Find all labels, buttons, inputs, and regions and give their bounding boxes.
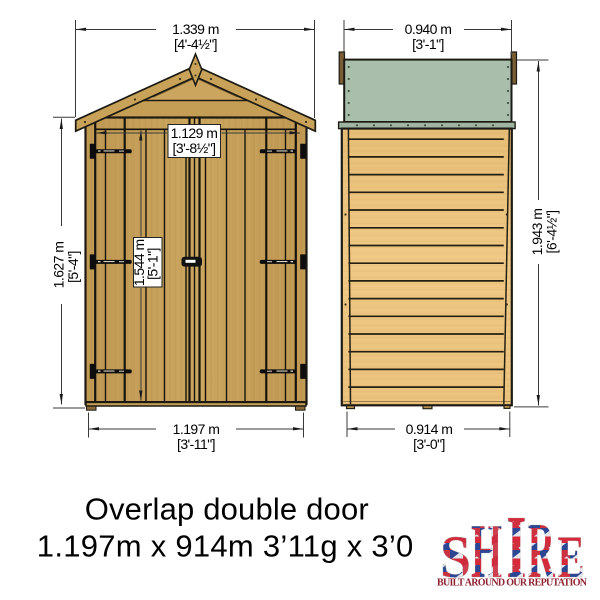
svg-text:[3'-11"]: [3'-11"] bbox=[177, 436, 215, 452]
svg-text:0.914 m: 0.914 m bbox=[406, 421, 453, 437]
svg-text:Overlap double door: Overlap double door bbox=[85, 492, 369, 527]
svg-text:1.197 m: 1.197 m bbox=[173, 421, 220, 437]
svg-text:[3'-8½"]: [3'-8½"] bbox=[173, 140, 216, 156]
svg-text:BUILT AROUND OUR REPUTATION: BUILT AROUND OUR REPUTATION bbox=[437, 578, 588, 589]
svg-text:[5'-1"]: [5'-1"] bbox=[145, 248, 161, 280]
svg-text:0.940 m: 0.940 m bbox=[405, 21, 452, 37]
svg-text:1.197m x 914m 3’11g x 3’0: 1.197m x 914m 3’11g x 3’0 bbox=[37, 529, 414, 564]
svg-text:[3'-0"]: [3'-0"] bbox=[413, 436, 445, 452]
svg-text:1.339 m: 1.339 m bbox=[172, 21, 219, 37]
svg-text:[6'-4½"]: [6'-4½"] bbox=[544, 211, 560, 254]
svg-text:[5'-4"]: [5'-4"] bbox=[65, 251, 81, 283]
svg-text:[3'-1"]: [3'-1"] bbox=[412, 36, 444, 52]
svg-text:1.129 m: 1.129 m bbox=[171, 125, 218, 141]
svg-text:[4'-4½"]: [4'-4½"] bbox=[174, 36, 217, 52]
